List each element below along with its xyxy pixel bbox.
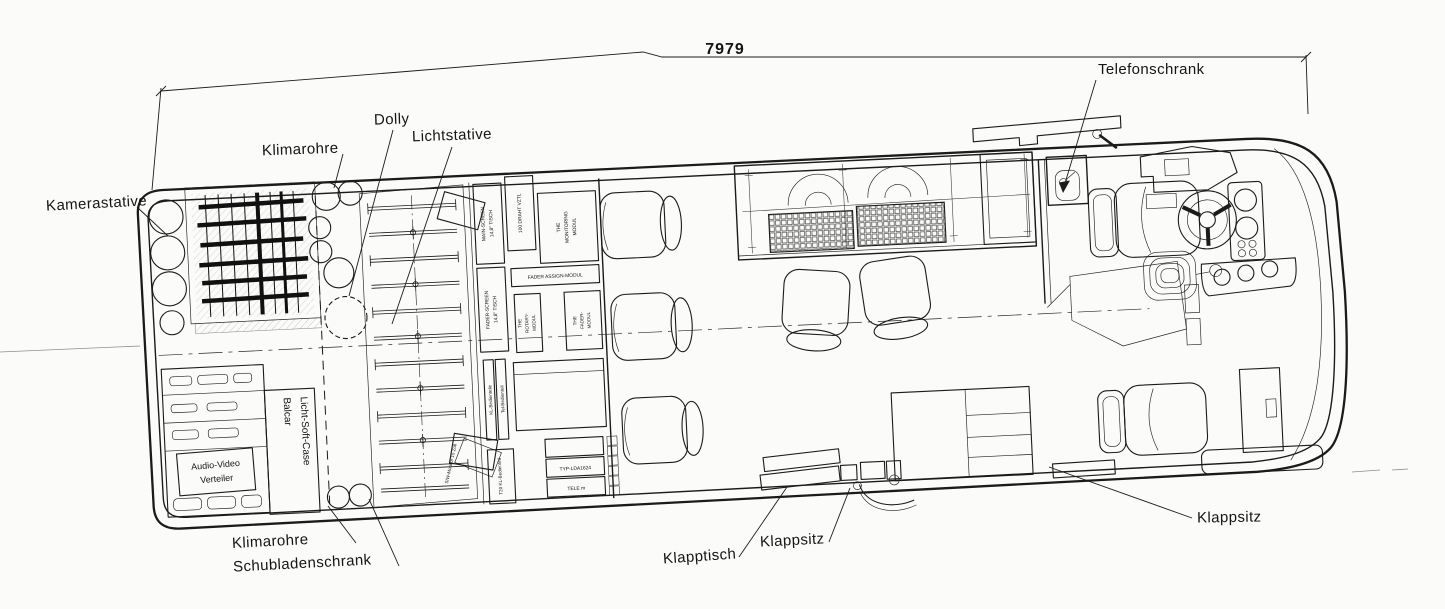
dimension-value: 7979 (705, 41, 745, 58)
driver-cab (1066, 175, 1324, 480)
entry-area (755, 383, 1116, 517)
callout-klappsitz-right: Klappsitz (1197, 509, 1262, 525)
cab-partition (1038, 159, 1071, 308)
van-inner-wall (147, 146, 1341, 518)
rack-label: FADER-SCREEN (484, 290, 492, 329)
driver-seat (1088, 180, 1201, 259)
rack-label: TYP-LDA1624 (559, 465, 591, 472)
arrowhead (1059, 181, 1070, 194)
callout-klimarohre-bottom: Klimarohre (232, 532, 309, 551)
operator-chairs (599, 189, 704, 465)
rack-label: THE (556, 222, 562, 233)
chair (599, 190, 683, 260)
production-desk (734, 152, 1041, 358)
gear-shifter (1143, 249, 1223, 301)
balcar-label-line1: Balcar (281, 397, 293, 427)
passenger-seat (1097, 382, 1208, 457)
engine-console (1069, 261, 1187, 348)
rack-connector-strip (607, 436, 620, 495)
rack-label: T20 KL-Bedienteil (497, 458, 504, 495)
callout-klappsitz-mid: Klappsitz (760, 531, 825, 549)
rack-label: Tel-Bedienteil (499, 385, 505, 413)
door-panel-upper (1183, 258, 1299, 345)
rack-label: MODUL (586, 311, 592, 328)
storage-compartment: Audio-Video Verteiler Balcar Licht-Soft-… (148, 180, 377, 520)
telefonschrank-cabinet (1046, 155, 1088, 205)
rack-label: TELE m (567, 485, 585, 492)
rack-label: FADER- (579, 311, 585, 329)
reference-lines (0, 346, 1408, 472)
balcar-label-line2: Licht-Soft-Case (298, 396, 312, 466)
keyboard (768, 202, 946, 252)
monitor-box-bottom: S/W-Monitor 15 Zoll (442, 431, 503, 484)
schubladenschrank-cabinet (161, 365, 270, 518)
floorplan-canvas: 7979 (0, 0, 1445, 609)
verteiler-label-line2: Verteiler (200, 472, 234, 485)
overhead-console (1140, 144, 1239, 208)
dashboard-gauges (1228, 181, 1266, 261)
rack-label: ROTARY- (524, 313, 530, 334)
door-panel-lower (1239, 368, 1283, 453)
stand-accessory-box-top (437, 192, 485, 230)
callout-telefonschrank: Telefonschrank (1098, 62, 1205, 77)
audio-video-verteiler-box: Audio-Video Verteiler (177, 448, 256, 496)
entry-door-swing (853, 479, 916, 512)
callout-lichtstative: Lichtstative (412, 127, 492, 145)
rack-label: KL-Bedienteile (487, 384, 493, 415)
rack-wall: MAIN-SCREEN 14,8" TISCH 100 DRAHT VZTL T… (469, 172, 620, 504)
rack-label: MAIN-SCREEN (480, 206, 488, 241)
chair (610, 291, 694, 361)
rack-label: 14,8" TISCH (488, 209, 495, 237)
balcar-case: Balcar Licht-Soft-Case (264, 388, 320, 514)
rack-label: 14,8" TISCH (492, 295, 499, 323)
rack-label: THE (517, 319, 522, 328)
chair (780, 269, 851, 353)
camera-tripods-bundle (185, 182, 322, 334)
rack-label: MODUL (531, 314, 537, 331)
chair (858, 254, 935, 344)
callout-klimarohre-top: Klimarohre (262, 141, 339, 159)
vehicle-body: Audio-Video Verteiler Balcar Licht-Soft-… (135, 106, 1354, 546)
windshield-dash-curve (1274, 147, 1329, 461)
rack-label: THE (572, 316, 577, 325)
chair (621, 395, 705, 465)
verteiler-label-line1: Audio-Video (191, 458, 241, 472)
rack-label: FADER ASSIGN-MODUL (528, 272, 584, 281)
camera-tripod-rolls (148, 199, 188, 335)
rack-label: 100 DRAHT VZTL (516, 193, 524, 233)
rack-label: MODUL (572, 217, 579, 235)
vehicle-centerline (159, 309, 1150, 356)
rack-label: MONITORING (563, 211, 570, 243)
callout-dolly: Dolly (374, 111, 410, 127)
